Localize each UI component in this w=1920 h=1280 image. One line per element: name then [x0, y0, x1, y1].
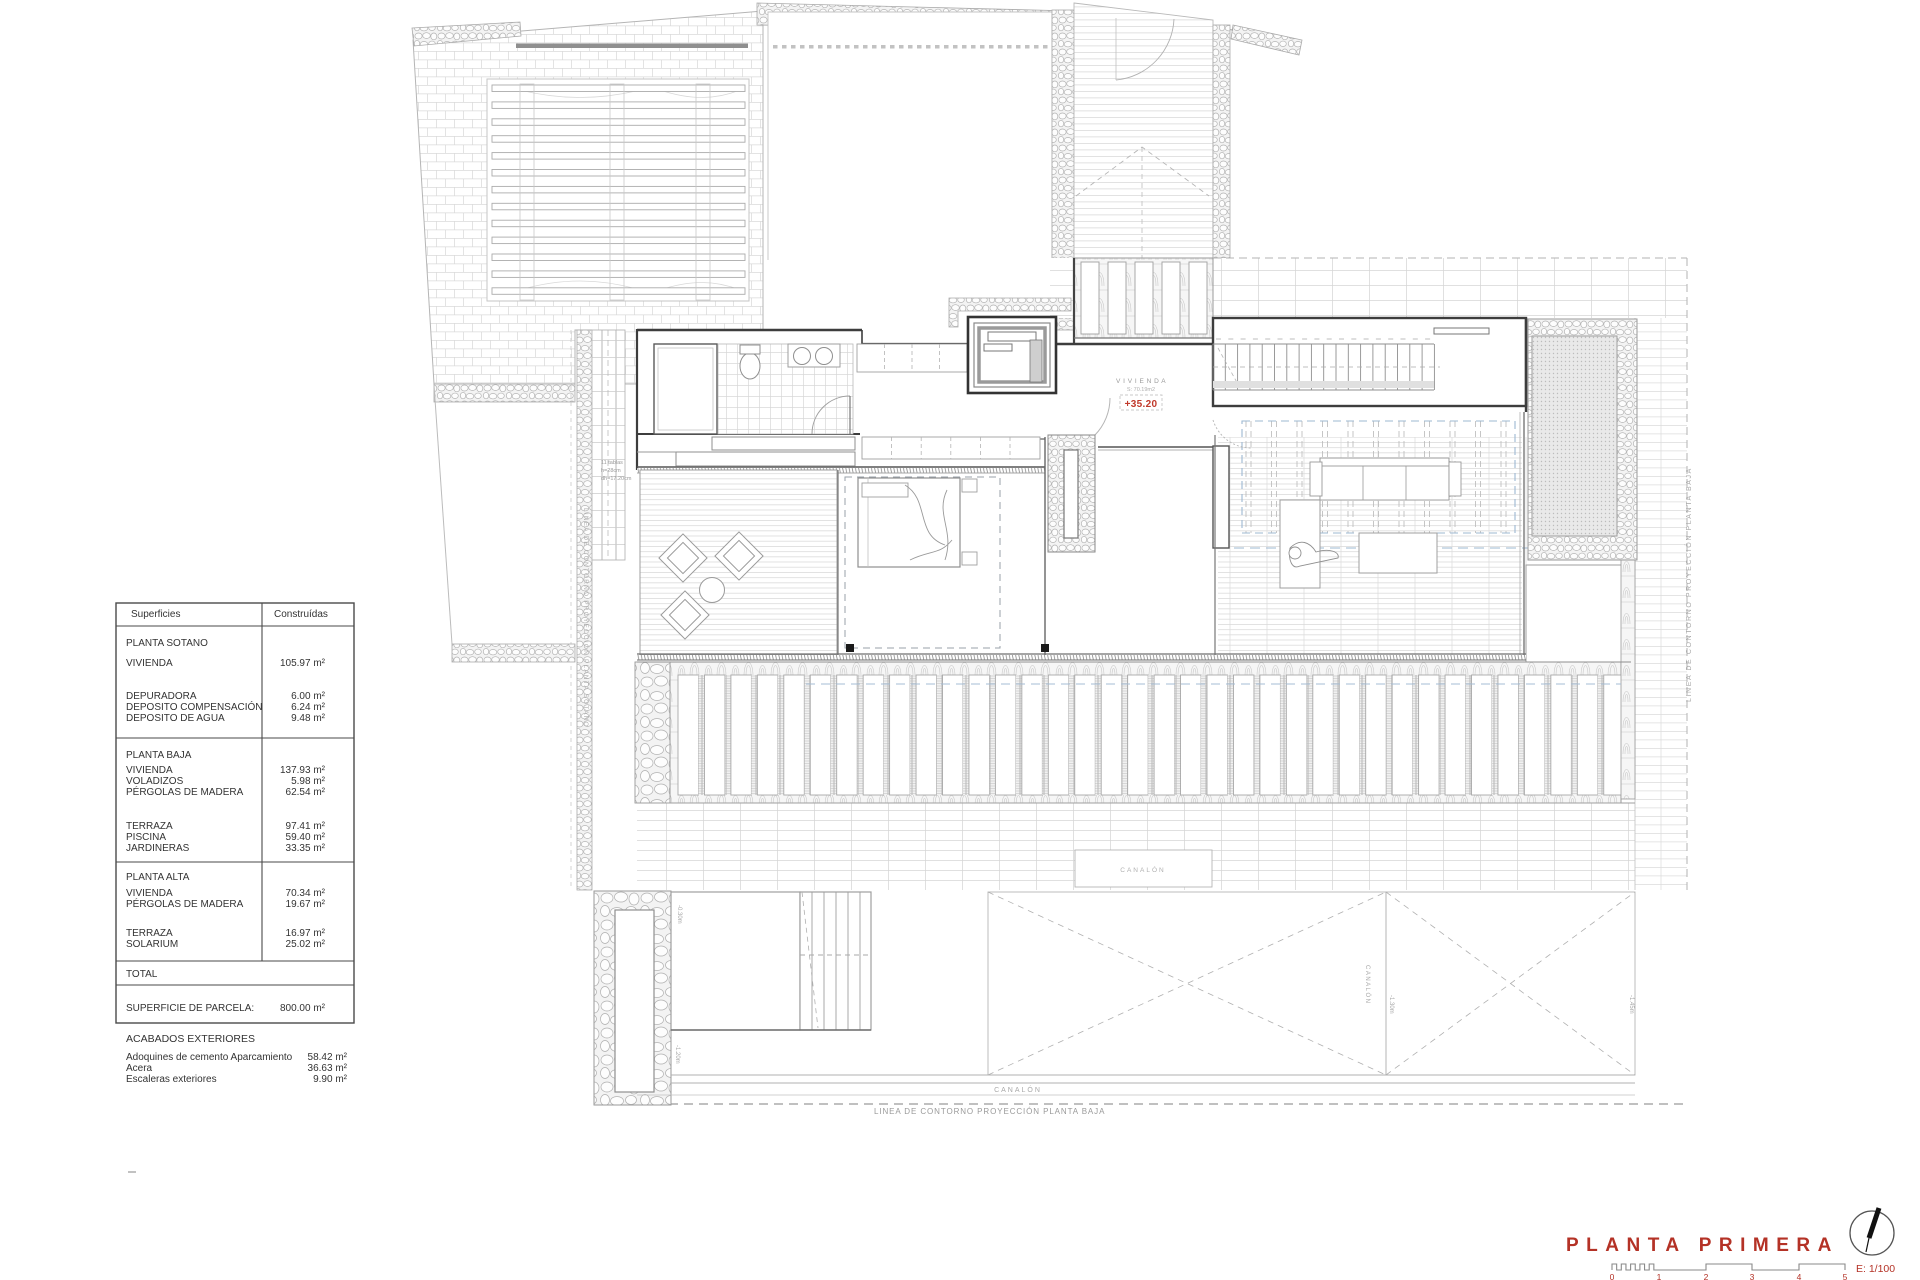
- svg-text:-1.20m: -1.20m: [674, 1045, 680, 1064]
- svg-text:58.42 m²: 58.42 m²: [308, 1052, 348, 1063]
- svg-text:62.54 m²: 62.54 m²: [286, 787, 326, 798]
- svg-text:PLANTA SOTANO: PLANTA SOTANO: [126, 638, 208, 649]
- svg-text:-0.30m: -0.30m: [676, 905, 682, 924]
- svg-text:33.35 m²: 33.35 m²: [286, 843, 326, 854]
- svg-text:PÉRGOLAS DE MADERA: PÉRGOLAS DE MADERA: [126, 897, 244, 910]
- svg-text:TOTAL: TOTAL: [126, 969, 158, 980]
- svg-text:PLANTA BAJA: PLANTA BAJA: [126, 750, 192, 761]
- svg-text:105.97 m²: 105.97 m²: [280, 658, 326, 669]
- svg-text:CANALÓN: CANALÓN: [1364, 965, 1371, 1005]
- svg-text:VIVIENDA: VIVIENDA: [126, 888, 173, 899]
- svg-text:1: 1: [1657, 1272, 1662, 1280]
- svg-text:TERRAZA: TERRAZA: [126, 821, 173, 832]
- svg-text:5: 5: [1843, 1272, 1848, 1280]
- svg-text:9.48 m²: 9.48 m²: [291, 713, 326, 724]
- svg-text:36.63 m²: 36.63 m²: [308, 1063, 348, 1074]
- svg-text:6.24 m²: 6.24 m²: [291, 702, 326, 713]
- svg-text:0: 0: [1610, 1272, 1615, 1280]
- svg-text:19.67 m²: 19.67 m²: [286, 899, 326, 910]
- svg-text:Adoquines de cemento Aparcamie: Adoquines de cemento Aparcamiento: [126, 1052, 293, 1063]
- svg-text:3: 3: [1750, 1272, 1755, 1280]
- svg-text:-1.30m: -1.30m: [1388, 995, 1394, 1014]
- svg-text:PLANTA ALTA: PLANTA ALTA: [126, 872, 190, 883]
- svg-text:9.90 m²: 9.90 m²: [313, 1074, 348, 1085]
- svg-text:JARDINERAS: JARDINERAS: [126, 843, 190, 854]
- svg-text:DEPURADORA: DEPURADORA: [126, 691, 197, 702]
- svg-text:2: 2: [1704, 1272, 1709, 1280]
- svg-text:5.98 m²: 5.98 m²: [291, 776, 326, 787]
- svg-text:59.40 m²: 59.40 m²: [286, 832, 326, 843]
- svg-text:CANALÓN: CANALÓN: [1120, 865, 1165, 874]
- svg-text:25.02 m²: 25.02 m²: [286, 939, 326, 950]
- svg-text:+35.20: +35.20: [1125, 399, 1158, 410]
- svg-text:V I V I E N D A: V I V I E N D A: [1116, 378, 1166, 385]
- svg-text:DEPOSITO COMPENSACIÓN: DEPOSITO COMPENSACIÓN: [126, 700, 263, 713]
- svg-text:LINEA DE CONTORNO PROYECCIÓN P: LINEA DE CONTORNO PROYECCIÓN PLANTA BAJA: [1684, 467, 1693, 702]
- svg-text:TERRAZA: TERRAZA: [126, 928, 173, 939]
- svg-text:S: 70.19m2: S: 70.19m2: [1127, 387, 1155, 393]
- svg-text:Escaleras exteriores: Escaleras exteriores: [126, 1074, 217, 1085]
- svg-text:LINEA DE CONTORNO PROYECCIÓN P: LINEA DE CONTORNO PROYECCIÓN PLANTA SOTA…: [582, 508, 591, 728]
- svg-text:-1.45m: -1.45m: [1628, 995, 1634, 1014]
- svg-text:dh=17.20cm: dh=17.20cm: [601, 476, 632, 482]
- svg-text:137.93 m²: 137.93 m²: [280, 765, 326, 776]
- svg-text:11 tablas: 11 tablas: [601, 460, 623, 466]
- svg-text:4: 4: [1797, 1272, 1802, 1280]
- svg-text:97.41 m²: 97.41 m²: [286, 821, 326, 832]
- svg-text:PÉRGOLAS DE MADERA: PÉRGOLAS DE MADERA: [126, 785, 244, 798]
- svg-text:ACABADOS EXTERIORES: ACABADOS EXTERIORES: [126, 1033, 255, 1045]
- svg-text:VOLADIZOS: VOLADIZOS: [126, 776, 184, 787]
- svg-text:70.34 m²: 70.34 m²: [286, 888, 326, 899]
- svg-text:SOLARIUM: SOLARIUM: [126, 939, 178, 950]
- svg-text:E: 1/100: E: 1/100: [1856, 1263, 1895, 1275]
- svg-text:VIVIENDA: VIVIENDA: [126, 765, 173, 776]
- svg-text:SUPERFICIE DE PARCELA:: SUPERFICIE DE PARCELA:: [126, 1003, 254, 1014]
- svg-text:800.00 m²: 800.00 m²: [280, 1003, 326, 1014]
- svg-text:CANALÓN: CANALÓN: [994, 1085, 1042, 1094]
- svg-text:Acera: Acera: [126, 1063, 153, 1074]
- svg-text:PISCINA: PISCINA: [126, 832, 166, 843]
- svg-text:PLANTA PRIMERA: PLANTA PRIMERA: [1566, 1235, 1839, 1256]
- svg-text:DEPOSITO DE AGUA: DEPOSITO DE AGUA: [126, 713, 225, 724]
- svg-text:6.00 m²: 6.00 m²: [291, 691, 326, 702]
- svg-text:16.97 m²: 16.97 m²: [286, 928, 326, 939]
- svg-text:Construídas: Construídas: [274, 609, 328, 620]
- svg-text:h=28cm: h=28cm: [601, 468, 621, 474]
- svg-text:Superficies: Superficies: [131, 609, 180, 620]
- svg-text:VIVIENDA: VIVIENDA: [126, 658, 173, 669]
- svg-text:LINEA DE CONTORNO PROYECCIÓN P: LINEA DE CONTORNO PROYECCIÓN PLANTA BAJA: [874, 1107, 1105, 1116]
